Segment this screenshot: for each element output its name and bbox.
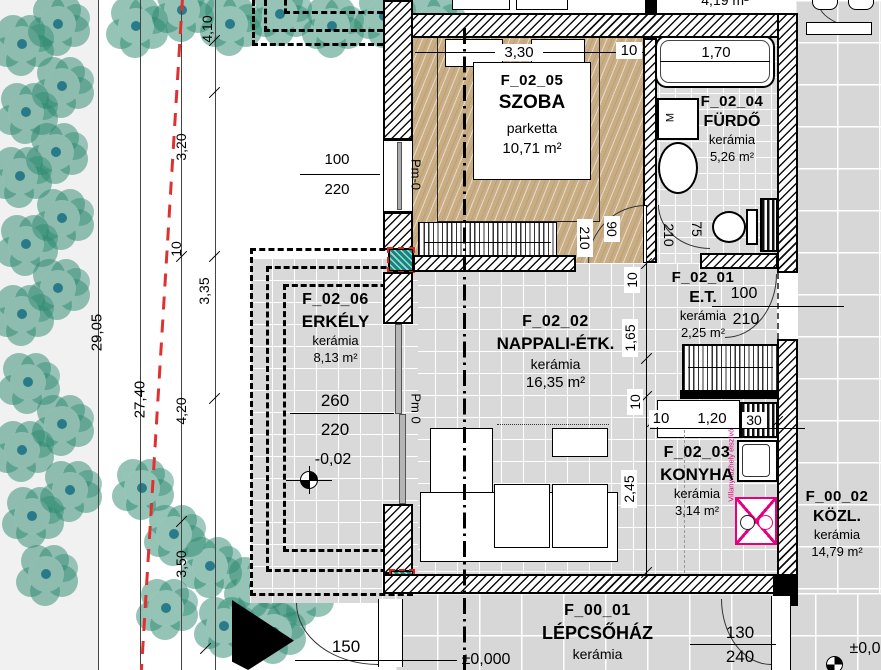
tree	[44, 68, 80, 104]
tree	[10, 364, 46, 400]
washing-machine-label: M	[666, 111, 677, 125]
tree	[8, 226, 44, 262]
entry-door-opening	[378, 599, 403, 667]
parapet-label: Pm-0	[410, 150, 423, 200]
dim-label: 10	[649, 410, 673, 427]
room-material: kerámia	[645, 486, 749, 503]
tree	[4, 296, 40, 332]
tree	[8, 94, 44, 130]
wall-szoba-bottom	[413, 255, 576, 272]
room-material: kerámia	[684, 132, 780, 149]
room-label-erkely: F_02_06 ERKÉLY kerámia 8,13 m²	[278, 290, 393, 367]
toilet-bowl	[712, 211, 746, 243]
room-area: 8,13 m²	[278, 350, 393, 367]
floor-plan: 4,10 3,20 10 3,35 29,05 27,40 4,20 3,50 …	[0, 0, 881, 670]
neighbor-area-label: 4,19 m²	[690, 0, 760, 8]
level-marker	[826, 656, 843, 670]
room-name: SZOBA	[474, 91, 590, 116]
room-area: 3,14 m²	[645, 503, 749, 520]
room-name: NAPPALI-ÉTK.	[478, 333, 633, 355]
site-line	[215, 0, 216, 670]
room-label-szoba: F_02_05 SZOBA parketta 10,71 m²	[473, 62, 591, 180]
dim-label: 220	[317, 182, 357, 197]
tree	[148, 590, 184, 626]
tree	[44, 406, 80, 442]
sliding-door	[399, 414, 406, 504]
room-name: KONYHA	[645, 464, 749, 486]
site-line	[140, 0, 141, 670]
room-code: F_02_05	[474, 71, 590, 91]
radiator	[682, 344, 779, 392]
room-label-kozl: F_00_02 KÖZL. kerámia 14,79 m²	[793, 487, 881, 561]
radiator-line	[688, 367, 773, 368]
dim-line	[690, 644, 776, 645]
room-code: F_00_02	[793, 487, 881, 507]
room-code: F_02_06	[278, 290, 393, 311]
dim-label: 4,10	[200, 9, 214, 49]
dim-label: 75	[690, 216, 704, 242]
dim-label: 210	[577, 219, 593, 257]
tree	[44, 200, 80, 236]
dim-label: 4,20	[174, 391, 188, 431]
neighbor-window	[516, 0, 568, 10]
room-code: F_02_02	[478, 312, 633, 333]
room-area: 2,25 m²	[650, 325, 756, 342]
dim-label: 240	[710, 648, 770, 665]
room-label-et: F_02_01 E.T. kerámia 2,25 m²	[650, 268, 756, 342]
level-label: -0,02	[303, 452, 363, 468]
room-material: kerámia	[478, 355, 633, 373]
room-code: F_02_03	[645, 443, 749, 464]
room-label-konyha: F_02_03 KONYHA kerámia 3,14 m²	[645, 443, 749, 520]
room-material: parketta	[474, 119, 590, 137]
wall-neighbor-top	[645, 0, 657, 14]
neighbor-window	[452, 0, 510, 10]
tree	[192, 548, 228, 584]
dim-label: 27,40	[133, 375, 148, 425]
parapet-label: Pm 0	[410, 384, 423, 434]
tree	[4, 432, 40, 468]
tree	[14, 498, 50, 534]
section-line	[463, 28, 466, 670]
kozl-top-threshold	[806, 22, 872, 35]
lepcsohaz-door-opening	[771, 596, 791, 670]
dim-chain-line	[646, 262, 647, 577]
room-area: 14,79 m²	[793, 544, 881, 561]
room-name: FÜRDŐ	[684, 112, 780, 133]
dim-label: 130	[710, 624, 770, 641]
dim-label: 3,30	[495, 44, 543, 61]
room-area: 5,26 m²	[684, 149, 780, 166]
dim-line	[650, 428, 805, 429]
room-label-lepcsohaz: F_00_01 LÉPCSŐHÁZ kerámia	[495, 601, 700, 663]
sofa-cushion	[494, 484, 550, 548]
tree	[40, 6, 76, 42]
tree	[52, 472, 88, 508]
dim-line	[295, 660, 457, 661]
tree	[118, 8, 154, 44]
dim-label: 3,20	[174, 127, 188, 167]
dim-line	[290, 413, 394, 414]
wall-top	[383, 13, 798, 38]
wall-left-1	[383, 0, 413, 140]
entry-arrow	[232, 600, 294, 670]
dim-label: 10	[624, 267, 640, 293]
dim-label: 220	[305, 421, 365, 438]
dim-label: 100	[317, 152, 357, 167]
room-label-nappali: F_02_02 NAPPALI-ÉTK. kerámia 16,35 m²	[478, 312, 633, 393]
room-code: F_02_04	[684, 92, 780, 112]
dim-label: 29,05	[90, 308, 105, 358]
neighbor-fixture	[848, 0, 874, 10]
wardrobe-line	[424, 242, 551, 243]
tree	[28, 556, 64, 592]
room-name: E.T.	[650, 288, 756, 309]
side-table	[552, 428, 608, 457]
burner	[758, 515, 773, 530]
wall-bottom	[383, 574, 775, 594]
tree	[38, 134, 74, 170]
level-marker-cross	[309, 466, 310, 494]
room-name: KÖZL.	[793, 507, 881, 528]
room-material: kerámia	[278, 333, 393, 350]
tree	[40, 270, 76, 306]
room-material: kerámia	[650, 308, 756, 325]
tree	[124, 470, 160, 506]
room-code: F_00_01	[495, 601, 700, 622]
dim-label: 210	[662, 216, 676, 254]
sliding-door	[395, 324, 402, 414]
bathtub-line	[660, 61, 770, 62]
room-label-furdo: F_02_04 FÜRDŐ kerámia 5,26 m²	[684, 92, 780, 166]
shaft	[760, 198, 778, 252]
dim-label: 3,35	[197, 271, 211, 311]
dim-label: 10	[616, 42, 642, 59]
room-material: kerámia	[793, 527, 881, 544]
dim-label: 30	[742, 412, 766, 428]
tree	[2, 158, 38, 194]
dim-label: 150	[322, 638, 370, 655]
wall-left-4	[383, 504, 413, 574]
wall-left-2	[383, 212, 413, 250]
dim-line	[300, 174, 380, 175]
level-label: ±0,0	[845, 641, 881, 657]
dim-label: 1,70	[692, 44, 740, 61]
window-glass	[397, 142, 402, 210]
dim-tick	[200, 643, 211, 654]
dim-label: 10	[169, 235, 183, 263]
toilet-tank	[746, 209, 758, 245]
room-area: 16,35 m²	[478, 373, 633, 393]
kitchen-top-wall	[680, 390, 779, 399]
dim-label: 1,20	[690, 410, 734, 427]
room-name: ERKÉLY	[278, 311, 393, 333]
dim-label: 260	[305, 392, 365, 409]
dim-label: 90	[604, 216, 620, 242]
room-material: kerámia	[495, 645, 700, 663]
sofa-cushion	[552, 484, 608, 548]
dim-label: 2,45	[621, 470, 637, 508]
szoba-door-leaf	[643, 205, 647, 263]
dim-label: 3,50	[174, 544, 188, 584]
room-name: LÉPCSŐHÁZ	[495, 622, 700, 645]
dim-label: 10	[627, 389, 643, 415]
upper-balcony-outline	[284, 0, 383, 14]
room-area: 10,71 m²	[474, 139, 590, 159]
wall-furdo-et	[700, 253, 778, 269]
wall-furdo-right	[777, 13, 798, 273]
room-code: F_02_01	[650, 268, 756, 288]
tree	[4, 26, 40, 62]
dotted-divider	[497, 424, 609, 425]
neighbor-fixture	[812, 0, 838, 10]
insulated-column	[388, 248, 414, 272]
